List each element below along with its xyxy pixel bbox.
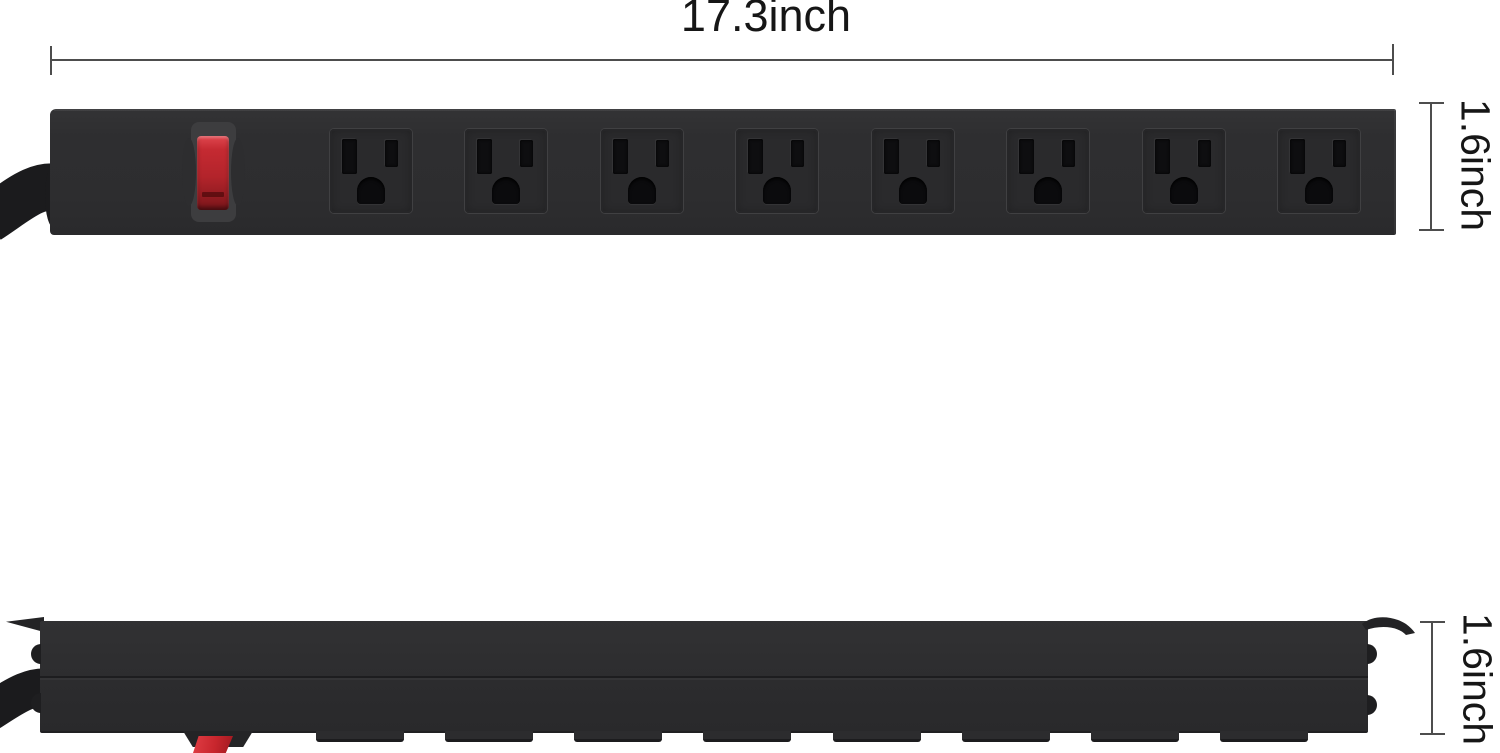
outlet-4 [736, 129, 818, 213]
side-switch-red [193, 736, 233, 753]
side-outlet-tab-5 [833, 731, 921, 742]
mounting-bracket-right [1360, 612, 1416, 640]
outlet-2 [465, 129, 547, 213]
front-height-line [1430, 103, 1432, 231]
outlet-2-ground-hole [492, 177, 520, 204]
side-outlet-tab-1 [316, 731, 404, 742]
outlet-2-neutral-slot [477, 139, 492, 174]
product-dimension-diagram: 17.3inch 1.6inch 1.6inch [0, 0, 1500, 753]
outlet-8-hot-slot [1333, 140, 1346, 167]
side-outlet-tab-3 [574, 731, 662, 742]
outlet-8 [1278, 129, 1360, 213]
side-outlet-tab-6 [962, 731, 1050, 742]
screw-bump-right-1 [1367, 644, 1377, 664]
power-switch [197, 136, 229, 210]
outlet-5-hot-slot [927, 140, 940, 167]
side-height-line [1431, 622, 1433, 734]
mounting-bracket-left [6, 617, 44, 632]
outlet-6-ground-hole [1034, 177, 1062, 204]
outlet-3-ground-hole [628, 177, 656, 204]
screw-bump-left-2 [31, 693, 41, 713]
outlet-4-ground-hole [763, 177, 791, 204]
outlet-1-hot-slot [385, 140, 398, 167]
power-strip-side-view [40, 621, 1368, 733]
outlet-8-ground-hole [1305, 177, 1333, 204]
outlet-7-neutral-slot [1155, 139, 1170, 174]
outlet-5-ground-hole [899, 177, 927, 204]
outlet-1 [330, 129, 412, 213]
side-outlet-tab-8 [1220, 731, 1308, 742]
side-outlet-tab-4 [703, 731, 791, 742]
outlet-1-neutral-slot [342, 139, 357, 174]
side-height-dimension-label: 1.6inch [1457, 613, 1498, 745]
screw-bump-right-2 [1367, 695, 1377, 715]
side-outlet-tab-7 [1091, 731, 1179, 742]
screw-bump-left-1 [31, 644, 41, 664]
outlet-6 [1007, 129, 1089, 213]
outlet-6-hot-slot [1062, 140, 1075, 167]
outlet-3-hot-slot [656, 140, 669, 167]
outlet-6-neutral-slot [1019, 139, 1034, 174]
side-height-tick-bottom [1420, 733, 1445, 735]
width-dimension-tick-right [1392, 44, 1394, 75]
front-height-tick-top [1419, 102, 1444, 104]
outlet-7-ground-hole [1170, 177, 1198, 204]
width-dimension-label: 17.3inch [666, 0, 866, 40]
outlet-1-ground-hole [357, 177, 385, 204]
outlet-7-hot-slot [1198, 140, 1211, 167]
side-outlet-tab-2 [445, 731, 533, 742]
outlet-3-neutral-slot [613, 139, 628, 174]
outlet-5-neutral-slot [884, 139, 899, 174]
outlet-8-neutral-slot [1290, 139, 1305, 174]
front-height-tick-bottom [1419, 229, 1444, 231]
outlet-5 [872, 129, 954, 213]
outlet-7 [1143, 129, 1225, 213]
width-dimension-tick-left [50, 46, 52, 75]
width-dimension-line [51, 59, 1394, 61]
side-height-tick-top [1420, 621, 1445, 623]
outlet-4-hot-slot [791, 140, 804, 167]
outlet-2-hot-slot [520, 140, 533, 167]
side-view-seam [40, 676, 1368, 678]
outlet-4-neutral-slot [748, 139, 763, 174]
outlet-3 [601, 129, 683, 213]
front-height-dimension-label: 1.6inch [1455, 99, 1496, 231]
